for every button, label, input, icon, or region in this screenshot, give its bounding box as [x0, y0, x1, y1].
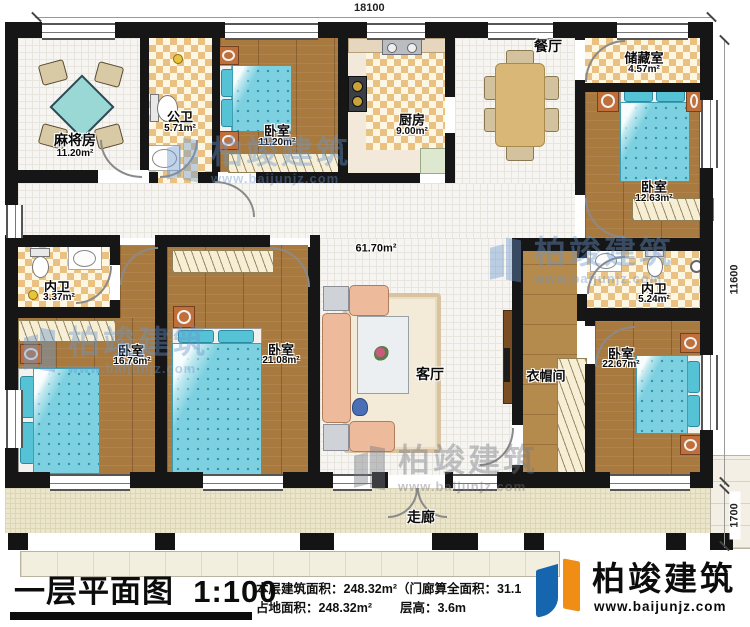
room-label-corridor: 走廊: [407, 510, 435, 524]
wall: [575, 83, 713, 92]
wall: [553, 22, 617, 38]
room-area-mahjong: 11.20m²: [57, 149, 94, 159]
wall: [338, 173, 420, 183]
kitchen-sink: [382, 39, 422, 55]
room-area-kitchen: 9.00m²: [396, 127, 428, 137]
double-bed: [172, 328, 260, 474]
wall: [700, 430, 713, 488]
floor-corridor: [5, 488, 733, 533]
wall: [512, 465, 523, 475]
kitchen-cabinet: [420, 148, 447, 174]
column: [300, 533, 334, 550]
wall: [212, 38, 220, 172]
brand-name: 柏竣建筑: [592, 562, 736, 595]
room-label-kitchen: 厨房: [399, 114, 425, 127]
sofa: [322, 313, 351, 423]
room-area-public-bath: 5.71m²: [164, 124, 196, 134]
nightstand: [680, 333, 701, 353]
window: [453, 474, 497, 491]
wall: [577, 251, 587, 258]
floor-hallway: [18, 183, 575, 238]
column: [8, 533, 28, 550]
wall: [310, 235, 320, 247]
window: [617, 23, 688, 40]
wall: [585, 364, 595, 475]
floor-drain: [173, 54, 183, 64]
window: [42, 23, 115, 40]
table-flowers: [374, 346, 390, 362]
column: [666, 533, 686, 550]
nightstand: [218, 131, 239, 150]
dimension-porch: 1700: [730, 492, 741, 540]
dimension-line-porch: [724, 490, 725, 548]
dining-table: [495, 63, 545, 147]
door-arc-mahjong: [100, 140, 142, 178]
wall: [512, 238, 713, 251]
column: [155, 533, 175, 550]
wall: [372, 472, 388, 488]
window: [203, 474, 283, 491]
wall: [425, 22, 488, 38]
dimension-line-top: [35, 17, 713, 18]
nightstand: [173, 306, 195, 328]
wall: [5, 307, 120, 318]
brand-logo-icon: [534, 557, 588, 621]
window: [701, 100, 718, 168]
wall: [308, 247, 320, 475]
nightstand: [218, 46, 239, 65]
armchair: [349, 421, 395, 452]
nightstand: [680, 435, 701, 455]
toilet-bowl: [647, 256, 663, 277]
wall: [700, 168, 713, 355]
wall: [318, 22, 367, 38]
wall: [256, 172, 348, 183]
chair: [544, 76, 559, 100]
wall: [115, 22, 225, 38]
room-label-mahjong: 麻将房: [54, 133, 96, 147]
wall: [512, 251, 523, 425]
room-label-closet: 衣帽间: [526, 370, 565, 383]
wall: [575, 80, 585, 195]
armchair: [349, 285, 389, 316]
room-area-bedroom-se: 22.67m²: [602, 360, 639, 370]
plan-title: 一层平面图 1:100: [14, 576, 278, 607]
title-underline: [10, 612, 252, 620]
tv-screen: [504, 348, 510, 382]
wardrobe: [18, 320, 116, 342]
room-label-living: 客厅: [416, 367, 444, 381]
wall: [110, 245, 120, 265]
wall: [585, 321, 595, 326]
window: [333, 474, 372, 491]
nightstand: [597, 90, 619, 112]
window: [701, 355, 718, 430]
window: [50, 474, 130, 491]
chair: [544, 108, 559, 132]
sink: [73, 250, 96, 267]
wall: [445, 38, 455, 97]
window: [225, 23, 318, 40]
wall: [155, 235, 270, 247]
window: [6, 390, 23, 448]
plan-scale: 1:100: [193, 574, 277, 609]
wall: [577, 308, 713, 321]
toilet-bowl: [32, 256, 49, 278]
dimension-right: 11600: [730, 251, 741, 309]
wall: [577, 294, 587, 308]
room-label-bedroom-top: 卧室: [264, 125, 290, 138]
wall: [445, 133, 455, 183]
room-area-bedroom-top: 11.20m²: [259, 138, 296, 148]
nightstand: [20, 344, 42, 364]
room-area-bedroom-w: 16.76m²: [113, 357, 150, 367]
wall: [149, 172, 158, 183]
dimension-top: 18100: [352, 3, 387, 14]
plan-stats: 本层建筑面积：248.32m²（门廊算全面积：31.1 占地面积：248.32m…: [256, 580, 550, 618]
double-bed: [18, 368, 98, 472]
end-table: [323, 286, 349, 311]
column: [524, 533, 544, 550]
end-table: [323, 424, 349, 451]
stove: [348, 76, 367, 112]
double-bed: [218, 65, 290, 130]
double-bed: [620, 88, 688, 180]
wall: [575, 22, 585, 40]
double-bed: [636, 355, 700, 432]
room-label-dining: 餐厅: [534, 39, 562, 53]
window: [610, 474, 690, 491]
decor-figure: [352, 398, 368, 416]
room-area-inner-bath-w: 3.37m²: [43, 293, 75, 303]
room-area-bedroom-ne: 12.63m²: [635, 194, 672, 204]
room-area-bedroom-c: 21.08m²: [262, 356, 299, 366]
wall: [338, 38, 348, 173]
window: [6, 205, 23, 238]
room-area-living: 61.70m²: [356, 244, 397, 255]
column: [432, 533, 478, 550]
wardrobe: [228, 153, 340, 173]
wall: [445, 472, 453, 488]
brand-site: www.baijunjz.com: [594, 600, 727, 614]
floor-drain: [28, 290, 38, 300]
stats-line1: 本层建筑面积：248.32m²（门廊算全面积：31.1: [256, 580, 550, 599]
wall: [5, 170, 98, 183]
floor-plan-canvas: 18100 11600 1700 麻将房 11.20m² 公卫 5.71m² 卧…: [0, 0, 750, 627]
dimension-line-right: [724, 40, 725, 485]
room-label-bedroom-ne: 卧室: [641, 181, 667, 194]
stats-line2: 占地面积：248.32m²层高：3.6m: [256, 599, 550, 618]
room-area-inner-bath-e: 5.24m²: [638, 295, 670, 305]
wall: [5, 448, 18, 488]
room-label-storage: 储藏室: [624, 52, 663, 65]
room-label-public-bath: 公卫: [167, 111, 193, 124]
wardrobe: [172, 250, 274, 273]
window: [367, 23, 425, 40]
room-area-storage: 4.57m²: [628, 65, 660, 75]
